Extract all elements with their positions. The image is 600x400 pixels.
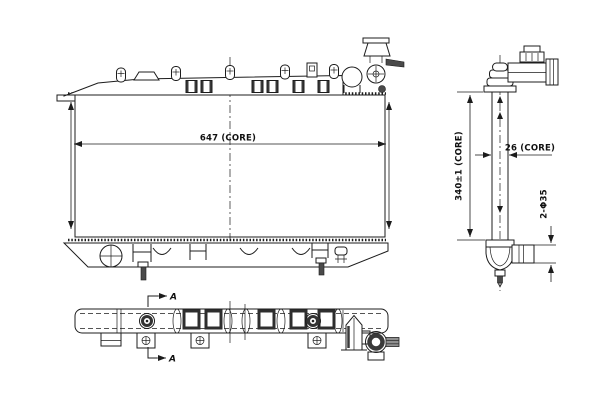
filler-neck-front: [367, 65, 385, 83]
mounting-tab-1: [137, 333, 155, 348]
boss-left: [140, 314, 155, 329]
outlet-pipe-side: [512, 245, 534, 263]
mounting-tab-3: [308, 333, 326, 348]
filler-neck-plan: [366, 332, 387, 353]
dimension-core-depth: 26 (CORE): [475, 144, 555, 156]
section-marker-bottom: A: [148, 347, 176, 365]
mounting-pin-left: [138, 262, 148, 280]
bottom-view: A A: [75, 293, 399, 365]
section-label-bottom: A: [168, 355, 176, 365]
dimension-pipe-diameter: 2-Φ35: [534, 189, 556, 282]
bottom-tank-side: [486, 240, 514, 287]
core-height-label: 340±1 (CORE): [455, 131, 465, 201]
mounting-tab-2: [191, 333, 209, 348]
dimension-core-height: 340±1 (CORE): [455, 95, 471, 237]
front-view: 647 (CORE): [57, 38, 404, 280]
core-depth-label: 26 (CORE): [505, 144, 555, 154]
boss-right: [306, 314, 321, 329]
pipe-diameter-label: 2-Φ35: [540, 189, 550, 219]
section-label-top: A: [169, 293, 177, 303]
top-tank: [57, 38, 404, 101]
neck-base-plate: [368, 352, 384, 360]
corner-plug: [379, 86, 386, 93]
left-bracket-tab: [101, 333, 121, 346]
core-width-label: 647 (CORE): [200, 134, 256, 144]
inlet-elbow: [508, 46, 558, 85]
drain-plug: [100, 245, 122, 267]
overflow-pipe-plan: [386, 338, 399, 347]
inlet-port: [342, 67, 362, 93]
radiator-technical-drawing: 647 (CORE) 340±1 (CORE) 26 (CORE): [0, 0, 600, 400]
section-marker-top: A: [148, 293, 177, 308]
side-view: 340±1 (CORE) 26 (CORE): [455, 46, 559, 291]
bottom-tank: [64, 243, 388, 280]
radiator-diagram-canvas: 647 (CORE) 340±1 (CORE) 26 (CORE): [0, 0, 600, 400]
overflow-tube: [386, 59, 404, 67]
